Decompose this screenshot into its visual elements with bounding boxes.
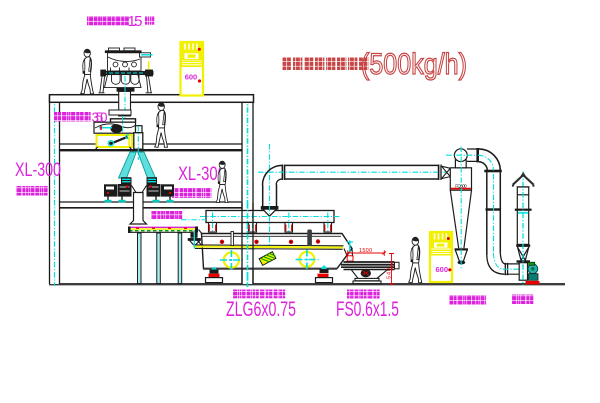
svg-text:540: 540 xyxy=(387,268,393,279)
svg-text:600: 600 xyxy=(436,265,449,274)
svg-text:XL-300: XL-300 xyxy=(15,160,61,181)
svg-text:600: 600 xyxy=(185,73,198,82)
svg-text:ZLG6x0.75: ZLG6x0.75 xyxy=(226,298,296,321)
svg-text:1.5: 1.5 xyxy=(128,13,143,30)
svg-text:(500kg/h): (500kg/h) xyxy=(361,48,467,81)
svg-text:1500: 1500 xyxy=(359,248,372,254)
svg-text:FS0.6x1.5: FS0.6x1.5 xyxy=(336,298,399,321)
